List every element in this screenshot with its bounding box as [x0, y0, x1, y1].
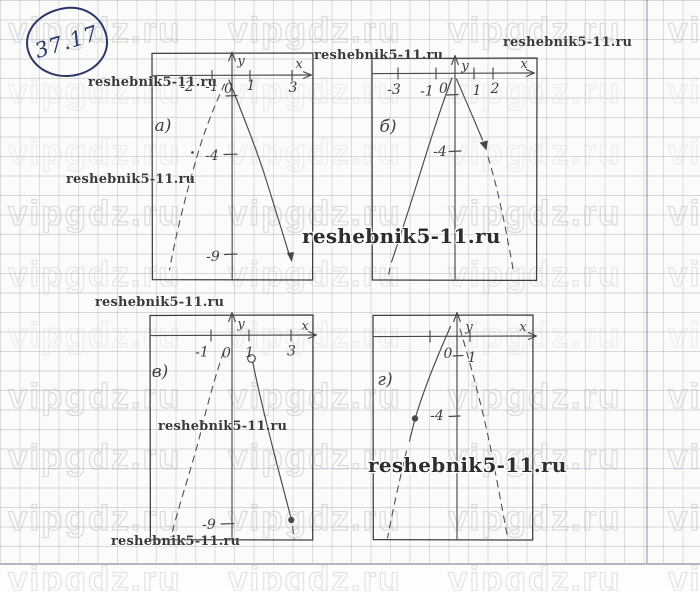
- graph-b-panel-label: б): [379, 117, 396, 137]
- graph-g-ytick--4: -4: [430, 408, 444, 424]
- graph-b-curve-arrowhead: [480, 140, 488, 150]
- graph-g-xtick-1: 1: [468, 350, 477, 366]
- reshebnik-watermark: reshebnik5-11.ru: [66, 172, 195, 187]
- graph-a-panel-label: а): [155, 116, 172, 136]
- graph-g-panel-label: г): [377, 370, 392, 390]
- graph-a-ytick--9: -9: [206, 249, 220, 265]
- graph-a-xtick-3: 3: [289, 80, 298, 96]
- reshebnik-watermark: reshebnik5-11.ru: [302, 224, 501, 248]
- reshebnik-watermark: reshebnik5-11.ru: [95, 295, 224, 310]
- graph-g-x-axis-label: x: [519, 320, 527, 335]
- graph-a-x-axis-label: x: [295, 57, 303, 72]
- graph-b-curve-left-tail-dashed: [388, 268, 390, 278]
- graph-v-filled-point: [288, 517, 294, 523]
- graph-g-xtick-0: 0: [444, 346, 453, 362]
- graph-a-curve-right-solid: [229, 80, 290, 257]
- reshebnik-watermark: reshebnik5-11.ru: [503, 35, 632, 50]
- graph-b-x-axis: [372, 73, 533, 74]
- graph-v-xtick-3: 3: [287, 344, 296, 360]
- graph-v-curve-right-solid: [253, 363, 291, 517]
- graph-v-xtick-1: 1: [245, 345, 254, 361]
- reshebnik-watermark: reshebnik5-11.ru: [88, 75, 217, 90]
- graph-b-xtick-0: 0: [439, 81, 448, 97]
- graph-b-curve-right-dashed: [488, 157, 514, 273]
- graph-a-y-axis-label: y: [236, 54, 245, 69]
- graph-v-ytick--9: -9: [202, 517, 216, 533]
- graph-b-xtick-2: 2: [490, 81, 500, 97]
- graph-a-ytick--4: -4: [205, 148, 219, 164]
- scanned-solution-page: vipgdz.ruvipgdz.ruvipgdz.ruvipgdz.ruvipg…: [0, 0, 700, 615]
- graph-a-xtick-1: 1: [247, 78, 256, 94]
- graph-a-xtick-0: 0: [224, 81, 233, 97]
- graph-v-xtick--1: -1: [195, 345, 209, 361]
- reshebnik-watermark: reshebnik5-11.ru: [314, 48, 443, 63]
- graph-g-frame: [373, 315, 533, 540]
- graph-v-panel-label: в): [152, 362, 169, 382]
- graph-a-stray-dot: [191, 151, 194, 154]
- notebook-photo: vipgdz.ruvipgdz.ruvipgdz.ruvipgdz.ruvipg…: [0, 0, 700, 591]
- graph-b-ytick--4: -4: [433, 144, 447, 160]
- graph-v-curve-right-tail-dashed: [293, 527, 295, 539]
- graph-b-xtick--1: -1: [420, 84, 434, 100]
- graph-g-filled-point: [412, 415, 418, 421]
- graph-a-ticks: [212, 71, 292, 255]
- graph-g-x-axis: [373, 336, 535, 337]
- reshebnik-watermark: reshebnik5-11.ru: [368, 453, 567, 477]
- graph-v-y-axis-label: y: [236, 317, 245, 332]
- graph-v-xtick-0: 0: [222, 346, 231, 362]
- reshebnik-watermark: reshebnik5-11.ru: [111, 534, 240, 549]
- graph-b-xtick-1: 1: [473, 83, 482, 99]
- reshebnik-watermark: reshebnik5-11.ru: [158, 419, 287, 434]
- graph-b-xtick--3: -3: [387, 82, 401, 98]
- graph-v-x-axis-label: x: [301, 319, 309, 334]
- graph-g: 0 1 -4 г) y x: [373, 313, 537, 541]
- graph-g-y-axis-label: y: [464, 320, 473, 335]
- graph-b-x-axis-label: x: [520, 57, 528, 72]
- graph-b-y-axis-label: y: [460, 59, 469, 74]
- graph-a-curve-arrowhead: [287, 252, 294, 262]
- graph-v-curve-left-dashed: [171, 352, 224, 537]
